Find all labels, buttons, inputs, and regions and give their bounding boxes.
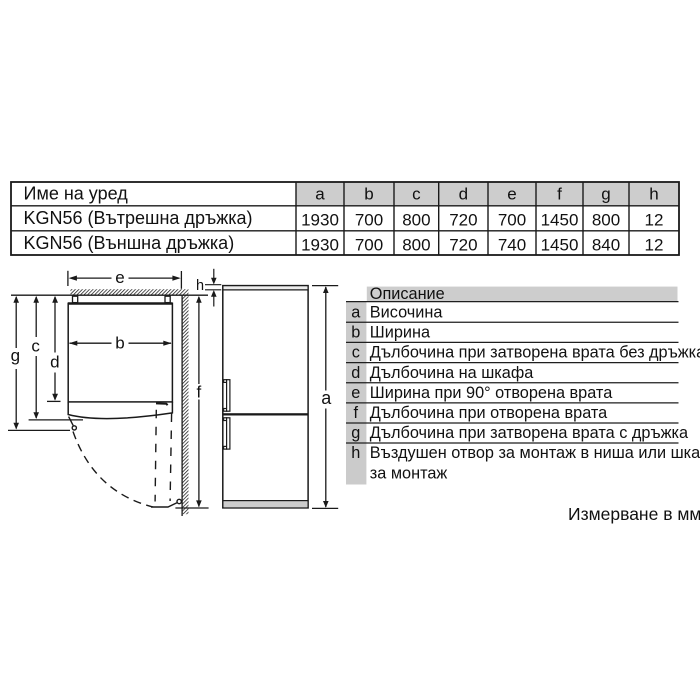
svg-text:700: 700: [498, 211, 526, 230]
svg-text:KGN56 (Вътрешна дръжка): KGN56 (Вътрешна дръжка): [24, 208, 253, 228]
svg-text:700: 700: [355, 235, 383, 254]
svg-text:Дълбочина при затворена врата: Дълбочина при затворена врата с дръжка: [370, 424, 689, 442]
svg-text:g: g: [601, 185, 610, 204]
svg-text:h: h: [196, 278, 204, 294]
svg-text:f: f: [557, 185, 562, 204]
svg-text:d: d: [351, 364, 360, 382]
svg-text:b: b: [364, 185, 373, 204]
svg-text:f: f: [354, 404, 359, 422]
svg-text:Въздушен отвор за монтаж в ниш: Въздушен отвор за монтаж в ниша или шкаф: [370, 444, 700, 462]
svg-text:c: c: [352, 344, 360, 362]
svg-text:KGN56 (Външна дръжка): KGN56 (Външна дръжка): [24, 233, 235, 253]
svg-text:1450: 1450: [541, 211, 579, 230]
svg-text:за монтаж: за монтаж: [370, 464, 448, 482]
svg-text:h: h: [649, 185, 658, 204]
svg-text:e: e: [351, 384, 360, 402]
svg-text:e: e: [507, 185, 516, 204]
svg-text:h: h: [351, 444, 360, 462]
svg-text:g: g: [11, 346, 20, 365]
svg-text:g: g: [351, 424, 360, 442]
svg-text:Име на уред: Име на уред: [24, 183, 129, 203]
svg-text:12: 12: [645, 211, 664, 230]
svg-text:d: d: [459, 185, 468, 204]
svg-text:Измерване в мм: Измерване в мм: [568, 504, 700, 524]
svg-text:720: 720: [449, 235, 477, 254]
svg-text:12: 12: [645, 235, 664, 254]
svg-text:a: a: [315, 185, 325, 204]
svg-text:800: 800: [402, 211, 430, 230]
svg-text:1930: 1930: [301, 211, 339, 230]
svg-text:d: d: [50, 353, 59, 372]
svg-text:Описание: Описание: [370, 285, 445, 303]
svg-text:b: b: [351, 324, 360, 342]
svg-text:c: c: [412, 185, 421, 204]
svg-text:700: 700: [355, 211, 383, 230]
svg-text:1450: 1450: [541, 235, 579, 254]
svg-text:720: 720: [449, 211, 477, 230]
svg-text:a: a: [351, 303, 361, 321]
svg-text:c: c: [31, 337, 40, 356]
svg-text:740: 740: [498, 235, 526, 254]
svg-text:Ширина: Ширина: [370, 324, 431, 342]
svg-text:Дълбочина при отворена врата: Дълбочина при отворена врата: [370, 404, 608, 422]
svg-text:Дълбочина на шкафа: Дълбочина на шкафа: [370, 364, 534, 382]
svg-text:Дълбочина при затворена врата: Дълбочина при затворена врата без дръжка: [370, 344, 700, 362]
svg-text:Височина: Височина: [370, 303, 444, 321]
svg-text:840: 840: [592, 235, 620, 254]
svg-text:e: e: [115, 268, 124, 287]
svg-text:a: a: [321, 388, 332, 408]
svg-text:b: b: [115, 333, 124, 352]
svg-text:800: 800: [402, 235, 430, 254]
svg-text:f: f: [197, 383, 202, 402]
svg-text:Ширина при 90° отворена врата: Ширина при 90° отворена врата: [370, 384, 613, 402]
svg-text:800: 800: [592, 211, 620, 230]
svg-text:1930: 1930: [301, 235, 339, 254]
